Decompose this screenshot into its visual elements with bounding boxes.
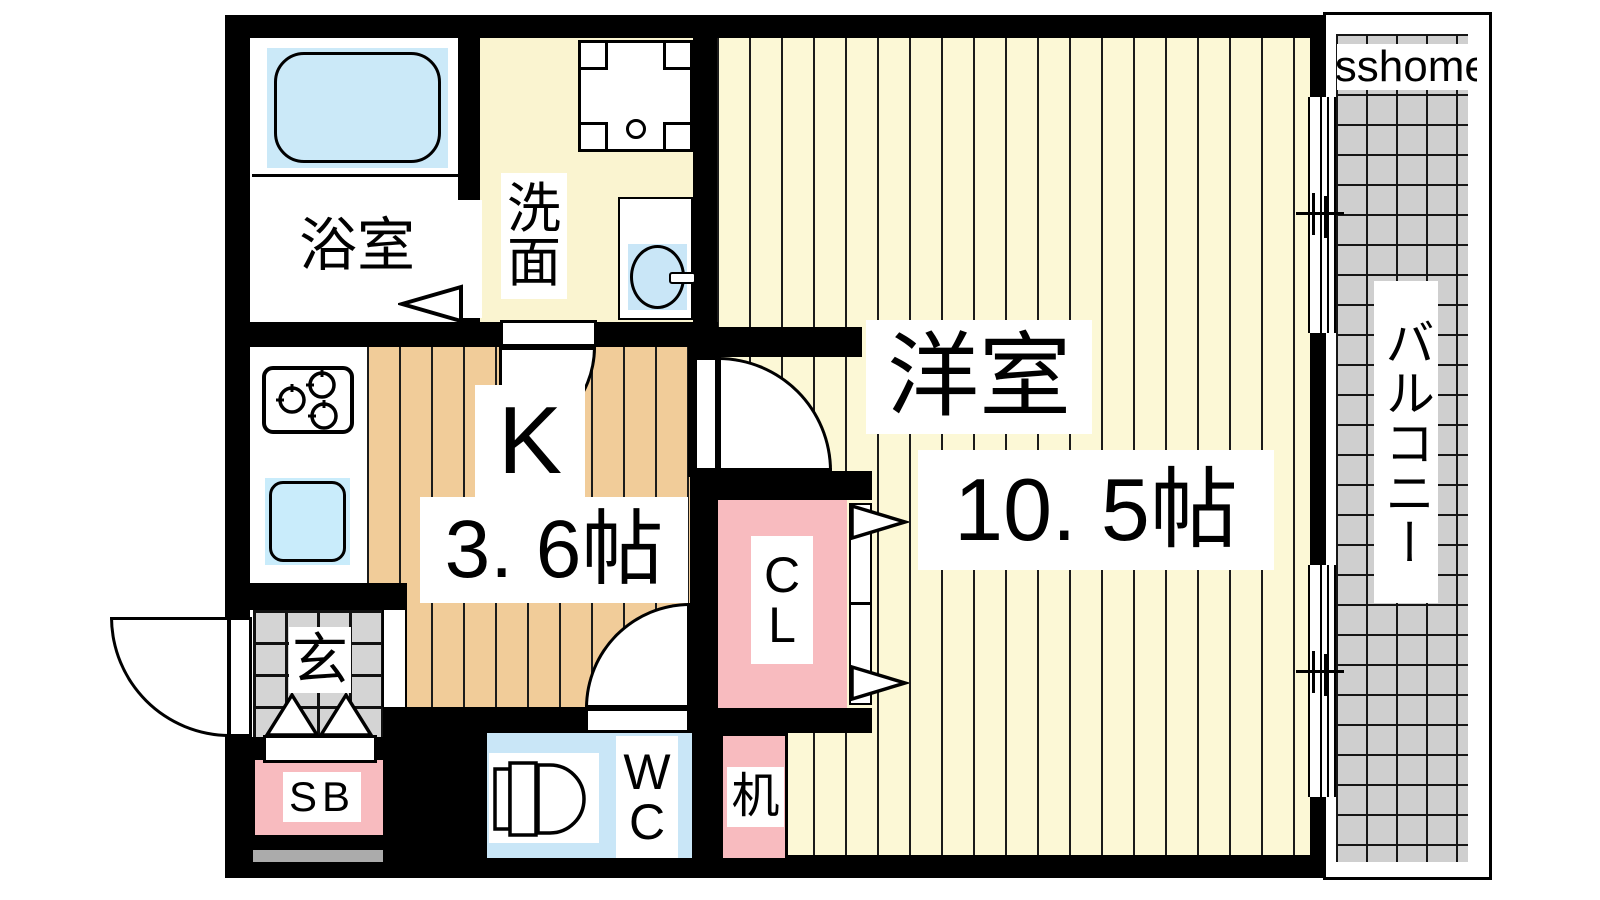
wall-top: [225, 15, 1336, 38]
entrance-label-text: 玄: [292, 632, 348, 688]
wall-wash-main-divider: [693, 15, 717, 356]
floor-plan: 浴室 洗 面 K 3. 6帖 玄 SB W C C L 机 洋室 10. 5帖 …: [0, 0, 1600, 900]
main-room-size-label: 10. 5帖: [918, 450, 1274, 570]
closet-folding-door-icon-bottom: [849, 663, 909, 703]
wall-closet-left: [690, 500, 718, 708]
bathroom-floor-line: [252, 174, 458, 177]
balcony-label: バルコニー: [1374, 281, 1438, 603]
kitchen-label-text: K: [498, 393, 562, 489]
pan-corner-tl: [578, 40, 608, 70]
main-room-label: 洋室: [866, 320, 1092, 434]
wall-block-left-of-wc: [383, 733, 487, 858]
wc-door-leaf: [585, 708, 690, 733]
gas-stove-icon: [258, 360, 358, 440]
wc-label: W C: [616, 736, 678, 858]
genkan-step-strip: [382, 610, 407, 707]
kitchen-size-label: 3. 6帖: [420, 497, 688, 603]
kitchen-size-text: 3. 6帖: [445, 509, 664, 591]
closet-label: C L: [751, 536, 813, 664]
bath-label: 浴室: [282, 210, 432, 282]
bath-folding-door-icon: [398, 284, 464, 324]
closet-folding-door-divider: [849, 602, 872, 605]
washbasin-icon: [618, 197, 693, 320]
wall-desk-left: [690, 733, 720, 858]
balcony-label-text: バルコニー: [1381, 317, 1431, 567]
main-room-size-text: 10. 5帖: [954, 466, 1238, 554]
washroom-label-line2: 面: [507, 236, 561, 290]
closet-label-line1: C: [764, 550, 800, 600]
window-tick-lower-v1: [1312, 651, 1315, 693]
window-lower-glass-line-2: [1327, 565, 1329, 797]
window-tick-upper-v2: [1324, 196, 1327, 238]
wall-bottom: [225, 855, 1336, 878]
main-door-leaf: [694, 357, 718, 471]
wall-closet-top: [690, 471, 872, 500]
washbasin-tap: [669, 272, 696, 284]
wc-label-line2: C: [629, 797, 665, 847]
entry-door-leaf: [228, 617, 252, 737]
kitchen-sink-outline: [269, 481, 346, 562]
watermark-text: isshome: [1337, 45, 1477, 89]
toilet-icon: [492, 757, 598, 841]
shoebox-vent-bar: [253, 850, 383, 862]
window-upper-glass-line-1: [1320, 97, 1322, 333]
main-room-label-text: 洋室: [887, 331, 1071, 423]
bath-label-text: 浴室: [299, 217, 415, 275]
window-tick-lower-v2: [1324, 654, 1327, 696]
shoebox-door-swing-icon: [263, 691, 377, 737]
washing-machine-pan-icon: [578, 40, 693, 152]
shoebox-label-text: SB: [289, 776, 355, 818]
entrance-label: 玄: [289, 627, 351, 693]
genkan-step: [263, 735, 377, 763]
pan-corner-br: [663, 122, 693, 152]
closet-folding-door-icon-top: [849, 502, 909, 542]
closet-label-line2: L: [768, 600, 796, 650]
wall-main-door-stub: [692, 327, 862, 357]
wc-label-line1: W: [623, 747, 670, 797]
wall-mid-horizontal: [225, 322, 718, 347]
kitchen-sink-icon: [265, 478, 350, 565]
pan-corner-tr: [663, 40, 693, 70]
wash-kitchen-door-leaf: [500, 320, 597, 347]
desk-label-text: 机: [731, 773, 779, 821]
window-upper-glass-line-2: [1327, 97, 1329, 333]
window-tick-upper-h: [1296, 212, 1344, 215]
pan-drain: [626, 119, 646, 139]
pan-corner-bl: [578, 122, 608, 152]
wall-counter-bottom: [225, 583, 407, 610]
bathtub-icon: [267, 48, 448, 168]
window-tick-upper-v1: [1312, 193, 1315, 235]
desk-label: 机: [727, 767, 784, 827]
washroom-label: 洗 面: [501, 173, 567, 299]
bathtub-outline: [274, 52, 441, 163]
entry-door-swing: [110, 617, 230, 737]
washroom-label-line1: 洗: [507, 182, 561, 236]
window-lower-glass-line-1: [1320, 565, 1322, 797]
window-tick-lower-h: [1296, 670, 1344, 673]
kitchen-label: K: [475, 385, 585, 497]
shoebox-label: SB: [283, 772, 361, 822]
wall-closet-bottom: [690, 708, 872, 733]
watermark: isshome: [1337, 44, 1477, 90]
wall-left-upper: [225, 15, 250, 619]
